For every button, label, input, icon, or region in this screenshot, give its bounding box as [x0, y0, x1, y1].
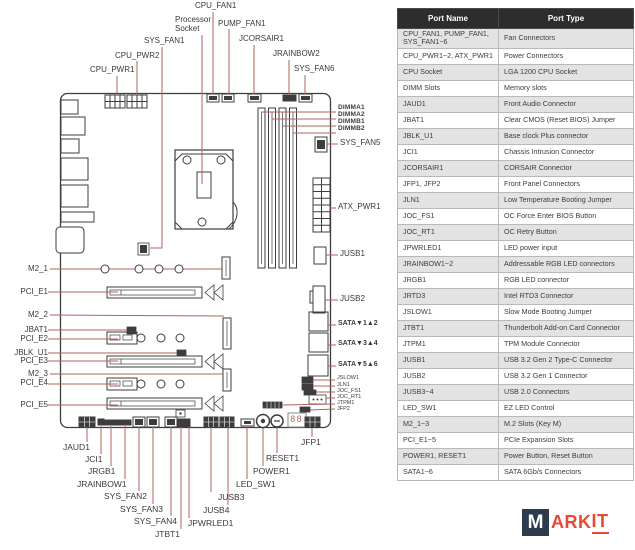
port-type-cell: TPM Module Connector — [499, 336, 634, 352]
jpwrled1-connector — [178, 419, 190, 427]
label-jrainbow1: JRAINBOW1 — [77, 480, 127, 489]
table-row: JBLK_U1Base clock Plus connector — [398, 128, 634, 144]
port-name-cell: JCI1 — [398, 144, 499, 160]
port-name-cell: JUSB3~4 — [398, 384, 499, 400]
port-name-cell: M2_1~3 — [398, 416, 499, 432]
label-jci1: JCI1 — [85, 455, 102, 464]
label-jusb1: JUSB1 — [340, 250, 365, 258]
label-jpwrled1: JPWRLED1 — [188, 519, 233, 528]
port-name-cell: DIMM Slots — [398, 80, 499, 96]
label-cpu-fan1: CPU_FAN1 — [195, 2, 236, 10]
label-pci-e5: PCI_E5 — [2, 401, 48, 409]
port-name-cell: PCI_E1~5 — [398, 432, 499, 448]
label-pump-fan1: PUMP_FAN1 — [218, 20, 266, 28]
top-headers — [207, 94, 312, 102]
jrainbow2-header — [283, 95, 296, 101]
port-name-cell: JRTD3 — [398, 288, 499, 304]
label-pci-e1: PCI_E1 — [2, 288, 48, 296]
table-row: JTBT1Thunderbolt Add-on Card Connector — [398, 320, 634, 336]
jslow1-jumper — [302, 377, 313, 383]
port-type-cell: LGA 1200 CPU Socket — [499, 64, 634, 80]
port-type-cell: PCIe Expansion Slots — [499, 432, 634, 448]
table-row: JUSB3~4USB 2.0 Connectors — [398, 384, 634, 400]
label-sys-fan1: SYS_FAN1 — [144, 37, 184, 45]
logo-m-box: M — [522, 509, 549, 536]
table-row: CPU SocketLGA 1200 CPU Socket — [398, 64, 634, 80]
label-m2-1: M2_1 — [2, 265, 48, 273]
label-pci-e4: PCI_E4 — [2, 379, 48, 387]
label-pci-e3: PCI_E3 — [2, 357, 48, 365]
label-sys-fan2: SYS_FAN2 — [104, 492, 147, 501]
table-row: JUSB1USB 3.2 Gen 2 Type-C Connector — [398, 352, 634, 368]
port-type-cell: EZ LED Control — [499, 400, 634, 416]
port-type-cell: CORSAIR Connector — [499, 160, 634, 176]
port-type-cell: Memory slots — [499, 80, 634, 96]
markit-logo: M ARK IT — [522, 509, 609, 536]
table-row: JLN1Low Temperature Booting Jumper — [398, 192, 634, 208]
jblk-u1-jumper — [177, 350, 186, 356]
label-jrgb1: JRGB1 — [88, 467, 115, 476]
port-name-cell: JSLOW1 — [398, 304, 499, 320]
port-type-cell: Thunderbolt Add-on Card Connector — [499, 320, 634, 336]
port-type-cell: Base clock Plus connector — [499, 128, 634, 144]
port-name-cell: CPU_FAN1, PUMP_FAN1, SYS_FAN1~6 — [398, 29, 499, 49]
label-led-sw1: LED_SW1 — [236, 480, 276, 489]
port-type-cell: Fan Connectors — [499, 29, 634, 49]
label-jfp2: JFP2 — [337, 407, 350, 413]
jci1-connector — [98, 419, 104, 425]
label-sys-fan5: SYS_FAN5 — [340, 139, 380, 147]
port-name-cell: SATA1~6 — [398, 464, 499, 480]
label-dimmb2: DIMMB2 — [338, 126, 365, 133]
table-row: JTPM1TPM Module Connector — [398, 336, 634, 352]
label-m2-2: M2_2 — [2, 311, 48, 319]
joc-fs1-button — [304, 390, 316, 395]
table-row: JPWRLED1LED power input — [398, 240, 634, 256]
port-type-cell: Intel RTD3 Connector — [499, 288, 634, 304]
motherboard-overview-page: CPU_FAN1 Processor Socket PUMP_FAN1 JCOR… — [0, 0, 635, 550]
port-type-cell: SATA 6Gb/s Connectors — [499, 464, 634, 480]
m2-slots — [222, 257, 231, 391]
port-name-cell: JUSB1 — [398, 352, 499, 368]
label-processor: Processor — [175, 16, 211, 24]
label-jrainbow2: JRAINBOW2 — [273, 50, 320, 58]
logo-it-text: IT — [592, 511, 609, 534]
jrainbow1-connector — [119, 420, 131, 425]
label-jcorsair1: JCORSAIR1 — [239, 35, 284, 43]
port-type-cell: Clear CMOS (Reset BIOS) Jumper — [499, 112, 634, 128]
port-type-cell: RGB LED connector — [499, 272, 634, 288]
label-jfp1: JFP1 — [301, 438, 321, 447]
port-type-cell: Front Audio Connector — [499, 96, 634, 112]
table-header-row: Port Name Port Type — [398, 9, 634, 29]
port-type-cell: Front Panel Connectors — [499, 176, 634, 192]
table-row: POWER1, RESET1Power Button, Reset Button — [398, 448, 634, 464]
label-jaud1: JAUD1 — [63, 443, 90, 452]
label-sata56: SATA▼5▲6 — [338, 361, 378, 368]
table-row: JUSB2USB 3.2 Gen 1 Connector — [398, 368, 634, 384]
label-jusb4: JUSB4 — [203, 506, 229, 515]
port-type-cell: OC Force Enter BIOS Button — [499, 208, 634, 224]
label-sys-fan6: SYS_FAN6 — [294, 65, 334, 73]
table-row: LED_SW1EZ LED Control — [398, 400, 634, 416]
table-row: JOC_FS1OC Force Enter BIOS Button — [398, 208, 634, 224]
jfp2-connector — [300, 407, 310, 412]
port-type-cell: OC Retry Button — [499, 224, 634, 240]
label-socket: Socket — [175, 25, 199, 33]
label-cpu-pwr1: CPU_PWR1 — [90, 66, 134, 74]
port-reference-table: Port Name Port Type CPU_FAN1, PUMP_FAN1,… — [397, 8, 634, 481]
column-header-port-type: Port Type — [499, 9, 634, 29]
column-header-port-name: Port Name — [398, 9, 499, 29]
jln1-jumper — [302, 384, 313, 390]
table-row: SATA1~6SATA 6Gb/s Connectors — [398, 464, 634, 480]
table-row: JRGB1RGB LED connector — [398, 272, 634, 288]
port-name-cell: JBLK_U1 — [398, 128, 499, 144]
port-name-cell: JUSB2 — [398, 368, 499, 384]
port-name-cell: JRAINBOW1~2 — [398, 256, 499, 272]
port-name-cell: JTPM1 — [398, 336, 499, 352]
logo-ark-text: ARK — [551, 512, 592, 533]
port-name-cell: CPU Socket — [398, 64, 499, 80]
label-power1: POWER1 — [253, 467, 290, 476]
label-sata34: SATA▼3▲4 — [338, 340, 378, 347]
port-type-cell: USB 3.2 Gen 1 Connector — [499, 368, 634, 384]
port-type-cell: Addressable RGB LED connectors — [499, 256, 634, 272]
table-row: JCI1Chassis Intrusion Connector — [398, 144, 634, 160]
port-name-cell: LED_SW1 — [398, 400, 499, 416]
label-sys-fan3: SYS_FAN3 — [120, 505, 163, 514]
table-row: DIMM SlotsMemory slots — [398, 80, 634, 96]
port-name-cell: JPWRLED1 — [398, 240, 499, 256]
port-name-cell: POWER1, RESET1 — [398, 448, 499, 464]
label-sata12: SATA▼1▲2 — [338, 320, 378, 327]
port-name-cell: JAUD1 — [398, 96, 499, 112]
label-pci-e2: PCI_E2 — [2, 335, 48, 343]
port-name-cell: JBAT1 — [398, 112, 499, 128]
port-name-cell: CPU_PWR1~2, ATX_PWR1 — [398, 48, 499, 64]
table-row: JFP1, JFP2Front Panel Connectors — [398, 176, 634, 192]
port-type-cell: Power Button, Reset Button — [499, 448, 634, 464]
port-name-cell: JFP1, JFP2 — [398, 176, 499, 192]
table-row: JSLOW1Slow Mode Booting Jumper — [398, 304, 634, 320]
port-type-cell: Low Temperature Booting Jumper — [499, 192, 634, 208]
port-type-cell: Power Connectors — [499, 48, 634, 64]
label-sys-fan4: SYS_FAN4 — [134, 517, 177, 526]
port-type-cell: USB 2.0 Connectors — [499, 384, 634, 400]
table-row: CPU_PWR1~2, ATX_PWR1Power Connectors — [398, 48, 634, 64]
jrgb1-connector — [105, 420, 118, 425]
port-name-cell: JLN1 — [398, 192, 499, 208]
label-atx-pwr1: ATX_PWR1 — [338, 203, 381, 211]
label-jtbt1: JTBT1 — [155, 530, 180, 539]
debug-led-digits: 88 — [290, 415, 303, 425]
port-type-cell: USB 3.2 Gen 2 Type-C Connector — [499, 352, 634, 368]
port-type-cell: M.2 Slots (Key M) — [499, 416, 634, 432]
label-reset1: RESET1 — [266, 454, 299, 463]
label-jusb2: JUSB2 — [340, 295, 365, 303]
audio-jack-stack — [56, 227, 84, 253]
table-row: JAUD1Front Audio Connector — [398, 96, 634, 112]
label-jslow1: JSLOW1 — [337, 376, 359, 382]
port-type-cell: Chassis Intrusion Connector — [499, 144, 634, 160]
jbat1-jumper — [127, 327, 136, 334]
table-row: PCI_E1~5PCIe Expansion Slots — [398, 432, 634, 448]
port-type-cell: LED power input — [499, 240, 634, 256]
label-jusb3: JUSB3 — [218, 493, 244, 502]
label-cpu-pwr2: CPU_PWR2 — [115, 52, 159, 60]
table-row: JCORSAIR1CORSAIR Connector — [398, 160, 634, 176]
port-name-cell: JTBT1 — [398, 320, 499, 336]
label-m2-3: M2_3 — [2, 370, 48, 378]
table-row: JRAINBOW1~2Addressable RGB LED connector… — [398, 256, 634, 272]
table-row: CPU_FAN1, PUMP_FAN1, SYS_FAN1~6Fan Conne… — [398, 29, 634, 49]
port-type-cell: Slow Mode Booting Jumper — [499, 304, 634, 320]
port-name-cell: JCORSAIR1 — [398, 160, 499, 176]
table-row: JRTD3Intel RTD3 Connector — [398, 288, 634, 304]
table-row: M2_1~3M.2 Slots (Key M) — [398, 416, 634, 432]
table-row: JBAT1Clear CMOS (Reset BIOS) Jumper — [398, 112, 634, 128]
label-jbat1: JBAT1 — [2, 326, 48, 334]
port-name-cell: JRGB1 — [398, 272, 499, 288]
table-row: JOC_RT1OC Retry Button — [398, 224, 634, 240]
port-name-cell: JOC_FS1 — [398, 208, 499, 224]
port-name-cell: JOC_RT1 — [398, 224, 499, 240]
